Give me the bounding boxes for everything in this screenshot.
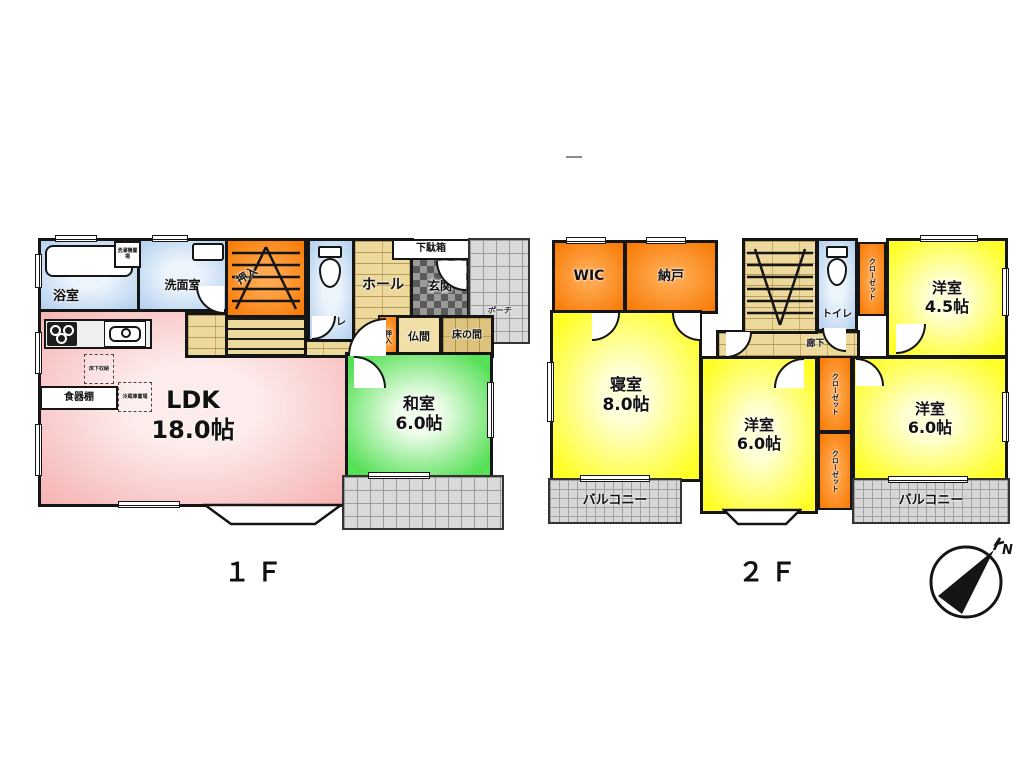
stray-dash — [566, 156, 582, 158]
room-washitsu-size: 6.0帖 — [395, 414, 442, 435]
room-ldk-size: 18.0帖 — [151, 415, 234, 445]
floor2-caption: ２Ｆ — [738, 552, 802, 589]
stairs-2f — [742, 238, 818, 334]
room-west-right-size: 6.0帖 — [908, 418, 952, 438]
burner-icon — [56, 333, 67, 344]
washroom-sink — [192, 243, 224, 261]
window — [920, 235, 978, 242]
window — [888, 476, 968, 483]
cupboard: 食器棚 — [40, 386, 118, 410]
compass-north-label: N — [1002, 543, 1013, 558]
floor-plan-canvas: LDK 18.0帖 浴室 洗面室 洗濯機置場 押入 トイレ — [0, 0, 1024, 768]
tokonoma-label: 床の間 — [452, 330, 482, 343]
kitchen-sink — [104, 321, 146, 347]
fridge-space-label: 冷蔵庫置場 — [122, 394, 147, 400]
cupboard-label: 食器棚 — [64, 392, 94, 405]
underfloor-storage: 床下収納 — [84, 354, 114, 384]
fridge-space: 冷蔵庫置場 — [118, 382, 152, 412]
room-west-mid-name: 洋室 — [744, 416, 774, 435]
window — [487, 382, 494, 438]
window — [547, 362, 554, 422]
stairs-1f: 押入 — [225, 238, 307, 318]
window — [118, 501, 180, 508]
room-west-mid-size: 6.0帖 — [737, 434, 781, 454]
balcony-right: バルコニー — [852, 478, 1010, 524]
room-bath-name: 浴室 — [53, 289, 79, 305]
closet-bottom-label: クローゼット — [831, 450, 840, 492]
window — [35, 254, 42, 288]
room-storeroom-name: 納戸 — [658, 269, 684, 285]
floor1-caption: １Ｆ — [224, 552, 288, 589]
underfloor-storage-label: 床下収納 — [89, 366, 109, 372]
window — [646, 237, 686, 244]
shoe-cabinet: 下駄箱 — [392, 239, 470, 260]
toilet-2f-tank — [826, 246, 848, 258]
balcony-right-label: バルコニー — [899, 493, 964, 509]
closet-bottom: クローゼット — [818, 432, 852, 510]
room-ldk-name: LDK — [166, 385, 220, 415]
closet-mid-label: クローゼット — [831, 373, 840, 415]
balcony-left: バルコニー — [548, 478, 682, 524]
corridor-2f-label: 廊下 — [806, 339, 824, 350]
window — [35, 332, 42, 374]
closet-mid: クローゼット — [818, 356, 852, 432]
window — [1002, 392, 1009, 442]
terrace — [342, 475, 504, 530]
room-washitsu-name: 和室 — [403, 394, 435, 414]
balcony-left-label: バルコニー — [583, 493, 648, 509]
room-wic-name: WIC — [574, 268, 605, 286]
room-storeroom: 納戸 — [624, 240, 718, 314]
bay-window — [203, 503, 343, 527]
laundry-space: 洗濯機置場 — [114, 241, 141, 268]
window — [35, 424, 42, 476]
room-toilet-2f-name: トイレ — [822, 309, 852, 322]
faucet-icon — [121, 328, 131, 338]
window — [368, 472, 430, 479]
room-wic: WIC — [552, 240, 626, 314]
bay-window-2f — [722, 508, 802, 526]
window — [1002, 268, 1009, 316]
closet-top-label: クローゼット — [868, 258, 877, 300]
closet-top: クローゼット — [858, 242, 886, 316]
shoe-cabinet-label: 下駄箱 — [416, 243, 446, 256]
room-washroom-name: 洗面室 — [164, 278, 200, 293]
room-west-small-name: 洋室 — [932, 279, 962, 298]
room-bedroom: 寝室 8.0帖 — [550, 310, 702, 482]
room-bedroom-size: 8.0帖 — [602, 395, 649, 416]
toilet-1f-tank — [318, 246, 342, 258]
room-west-small-size: 4.5帖 — [925, 297, 969, 317]
room-west-right-name: 洋室 — [915, 400, 945, 419]
stove — [47, 322, 77, 346]
window — [152, 235, 188, 242]
compass: N — [924, 530, 1016, 622]
laundry-space-label: 洗濯機置場 — [116, 249, 139, 260]
butsuma-label: 仏間 — [408, 330, 430, 344]
stairs-2f-lines — [745, 241, 815, 331]
window — [580, 475, 650, 482]
window — [566, 237, 606, 244]
room-hall-name: ホール — [362, 277, 404, 295]
stairs-1f-lower — [225, 315, 307, 357]
window — [55, 235, 97, 242]
room-bedroom-name: 寝室 — [610, 375, 642, 395]
